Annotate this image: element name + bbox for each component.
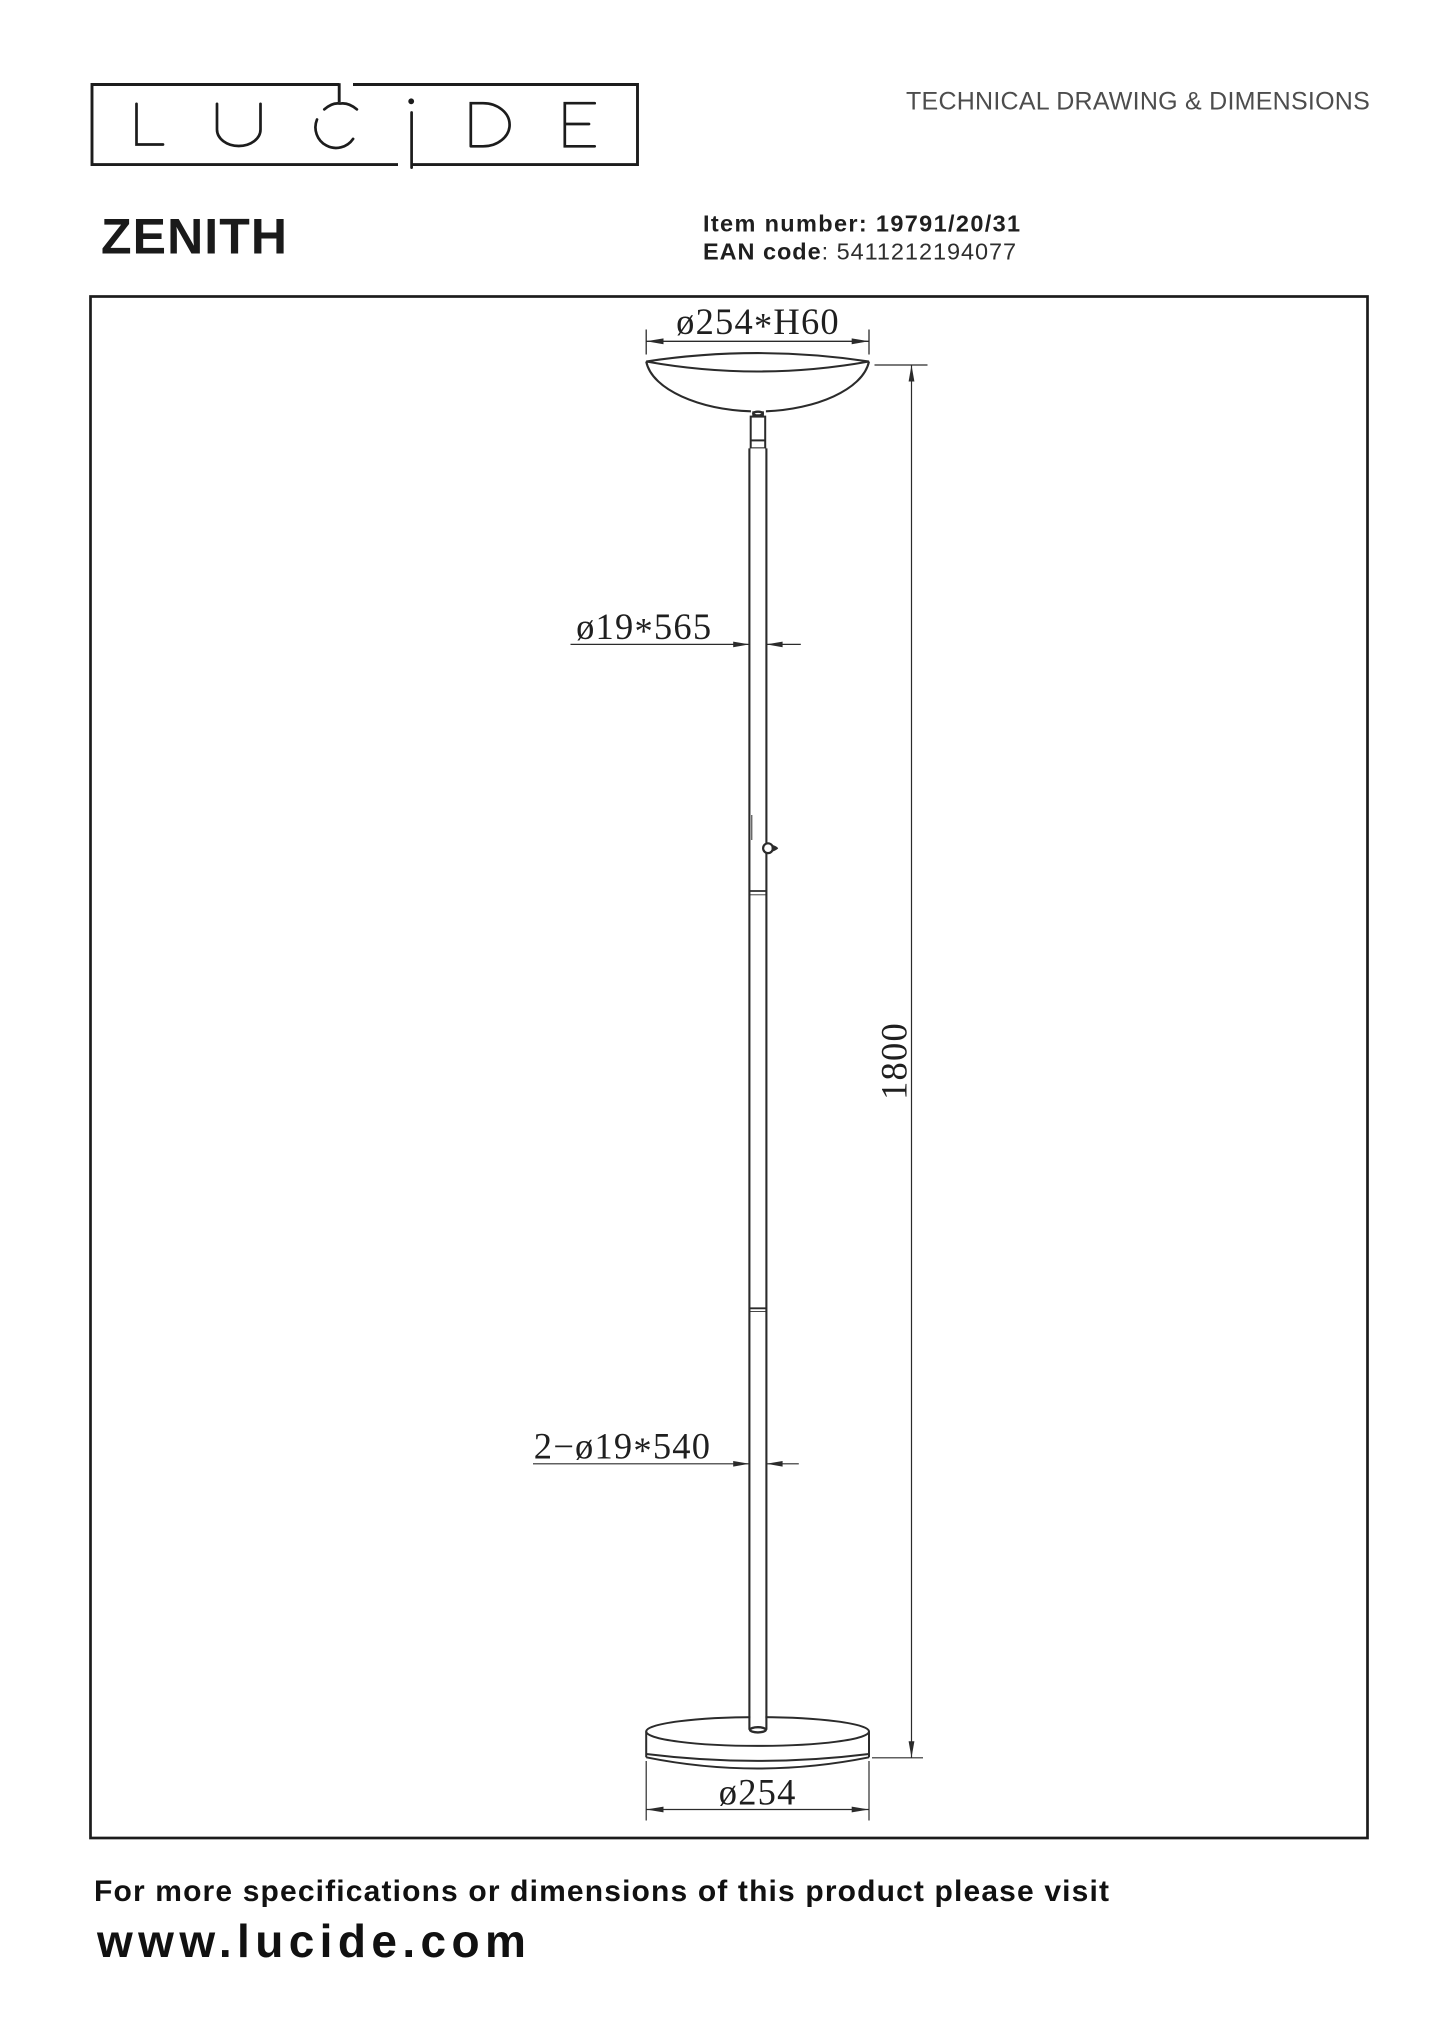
- svg-text:ø254: ø254: [719, 1772, 797, 1813]
- svg-text:ZENITH: ZENITH: [101, 209, 288, 265]
- svg-text:For more specifications or dim: For more specifications or dimensions of…: [94, 1875, 1110, 1908]
- svg-text:EAN code: 5411212194077: EAN code: 5411212194077: [703, 239, 1017, 265]
- svg-text:1800: 1800: [874, 1022, 915, 1100]
- svg-text:ø254*H60: ø254*H60: [676, 301, 840, 347]
- svg-text:TECHNICAL DRAWING & DIMENSIONS: TECHNICAL DRAWING & DIMENSIONS: [906, 88, 1370, 116]
- svg-text:www.lucide.com: www.lucide.com: [96, 1915, 531, 1967]
- svg-text:Item number: 19791/20/31: Item number: 19791/20/31: [703, 211, 1021, 237]
